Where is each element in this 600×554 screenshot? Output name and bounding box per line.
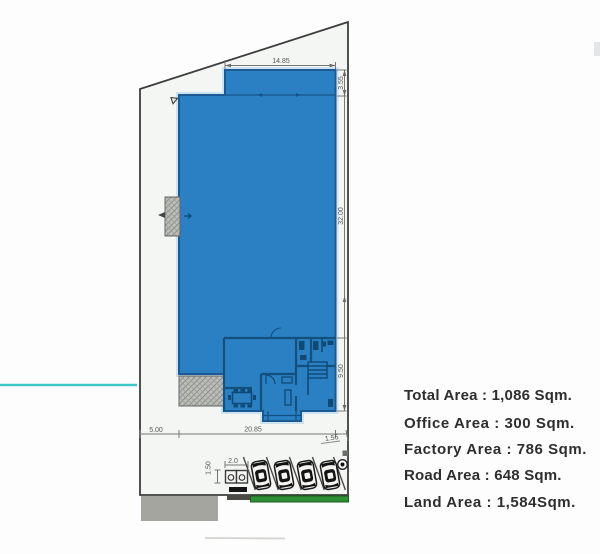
svg-text:Road Area : 648 Sqm.: Road Area : 648 Sqm. xyxy=(404,467,562,484)
svg-text:1.50: 1.50 xyxy=(206,461,213,475)
svg-text:14.85: 14.85 xyxy=(272,58,290,65)
svg-text:20.85: 20.85 xyxy=(244,427,262,434)
svg-text:5.00: 5.00 xyxy=(149,427,163,434)
svg-text:32.00: 32.00 xyxy=(338,207,345,225)
svg-text:2.0: 2.0 xyxy=(228,458,238,465)
svg-text:3.55: 3.55 xyxy=(338,76,345,90)
svg-text:Total Area : 1,086 Sqm.: Total Area : 1,086 Sqm. xyxy=(404,387,572,404)
svg-text:Office Area : 300 Sqm.: Office Area : 300 Sqm. xyxy=(404,415,575,432)
svg-text:9.50: 9.50 xyxy=(338,364,345,378)
svg-text:Factory Area : 786 Sqm.: Factory Area : 786 Sqm. xyxy=(404,441,587,458)
svg-text:Land Area : 1,584Sqm.: Land Area : 1,584Sqm. xyxy=(404,494,576,511)
